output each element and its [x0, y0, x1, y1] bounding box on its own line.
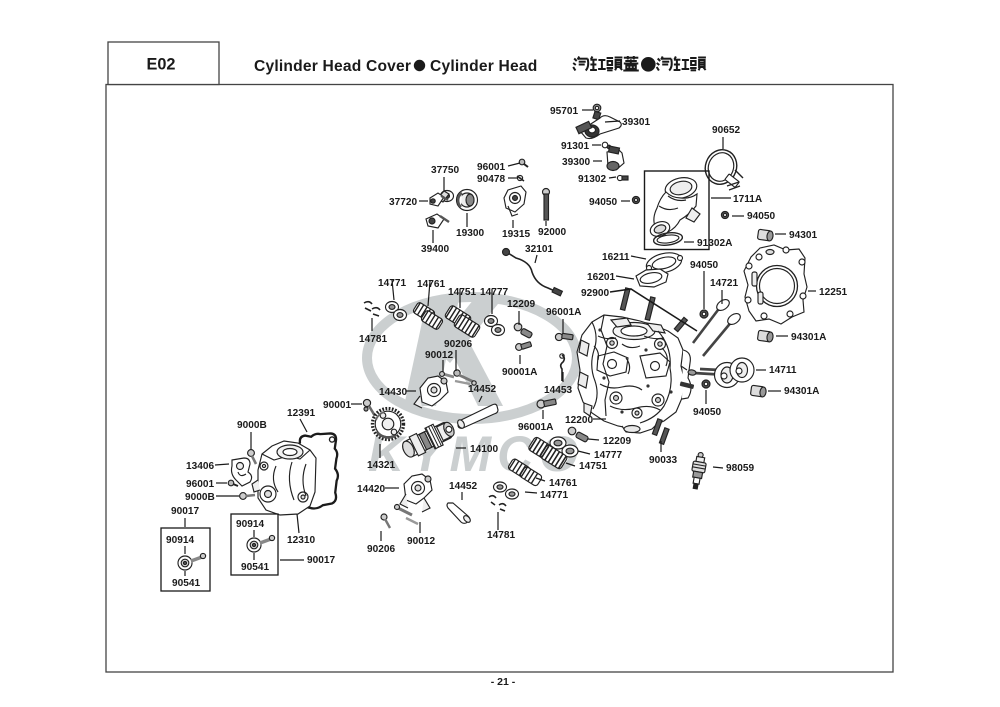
- svg-text:1711A: 1711A: [733, 194, 763, 205]
- svg-text:90012: 90012: [407, 536, 435, 547]
- svg-text:14781: 14781: [487, 530, 515, 541]
- svg-text:14430: 14430: [379, 387, 407, 398]
- svg-text:90652: 90652: [712, 125, 740, 136]
- svg-text:92000: 92000: [538, 227, 566, 238]
- svg-text:94050: 94050: [690, 260, 718, 271]
- svg-text:96001: 96001: [477, 162, 505, 173]
- svg-text:14711: 14711: [769, 365, 797, 376]
- svg-text:90478: 90478: [477, 174, 505, 185]
- svg-text:90017: 90017: [307, 555, 335, 566]
- svg-text:14771: 14771: [378, 278, 406, 289]
- svg-text:16211: 16211: [602, 252, 630, 263]
- svg-text:39301: 39301: [622, 117, 650, 128]
- svg-text:14721: 14721: [710, 278, 738, 289]
- svg-text:94050: 94050: [589, 197, 617, 208]
- svg-text:12209: 12209: [603, 436, 631, 447]
- svg-text:90914: 90914: [236, 519, 264, 530]
- svg-text:39300: 39300: [562, 157, 590, 168]
- svg-text:90012: 90012: [425, 350, 453, 361]
- svg-text:16201: 16201: [587, 272, 615, 283]
- svg-text:14777: 14777: [480, 287, 508, 298]
- svg-text:14781: 14781: [359, 334, 387, 345]
- svg-text:90017: 90017: [171, 506, 199, 517]
- svg-text:91302A: 91302A: [697, 238, 733, 249]
- svg-text:Cylinder Head: Cylinder Head: [430, 58, 537, 75]
- svg-text:14420: 14420: [357, 484, 385, 495]
- svg-text:94301A: 94301A: [791, 332, 827, 343]
- svg-text:90914: 90914: [166, 535, 194, 546]
- svg-text:96001A: 96001A: [546, 307, 582, 318]
- svg-text:90001: 90001: [323, 400, 351, 411]
- svg-text:9000B: 9000B: [237, 420, 267, 431]
- svg-text:9000B: 9000B: [185, 492, 215, 503]
- svg-text:12209: 12209: [507, 299, 535, 310]
- svg-text:94050: 94050: [747, 211, 775, 222]
- svg-text:90541: 90541: [172, 578, 200, 589]
- svg-text:14777: 14777: [594, 450, 622, 461]
- svg-text:12391: 12391: [287, 408, 315, 419]
- svg-text:14761: 14761: [417, 279, 445, 290]
- svg-text:90001A: 90001A: [502, 367, 538, 378]
- svg-text:- 21 -: - 21 -: [491, 676, 516, 688]
- svg-text:90541: 90541: [241, 562, 269, 573]
- svg-text:14751: 14751: [579, 461, 607, 472]
- svg-text:14452: 14452: [449, 481, 477, 492]
- svg-text:14761: 14761: [549, 478, 577, 489]
- svg-text:32101: 32101: [525, 244, 553, 255]
- svg-text:92900: 92900: [581, 288, 609, 299]
- svg-text:12200: 12200: [565, 415, 593, 426]
- svg-text:14321: 14321: [367, 460, 395, 471]
- svg-text:19300: 19300: [456, 228, 484, 239]
- svg-text:98059: 98059: [726, 463, 754, 474]
- svg-text:12251: 12251: [819, 287, 847, 298]
- svg-text:14453: 14453: [544, 385, 572, 396]
- svg-text:37720: 37720: [389, 197, 417, 208]
- svg-text:12310: 12310: [287, 535, 315, 546]
- svg-text:96001: 96001: [186, 479, 214, 490]
- svg-text:90206: 90206: [367, 544, 395, 555]
- svg-text:E02: E02: [147, 56, 176, 74]
- svg-text:Cylinder Head Cover: Cylinder Head Cover: [254, 58, 411, 75]
- svg-text:19315: 19315: [502, 229, 530, 240]
- svg-text:14751: 14751: [448, 287, 476, 298]
- svg-text:95701: 95701: [550, 106, 578, 117]
- svg-text:39400: 39400: [421, 244, 449, 255]
- svg-text:90206: 90206: [444, 339, 472, 350]
- svg-text:90033: 90033: [649, 455, 677, 466]
- svg-text:14452: 14452: [468, 384, 496, 395]
- svg-text:94050: 94050: [693, 407, 721, 418]
- svg-text:91302: 91302: [578, 174, 606, 185]
- svg-text:37750: 37750: [431, 165, 459, 176]
- svg-text:94301A: 94301A: [784, 386, 820, 397]
- svg-text:14771: 14771: [540, 490, 568, 501]
- svg-text:14100: 14100: [470, 444, 498, 455]
- svg-text:13406: 13406: [186, 461, 214, 472]
- svg-text:96001A: 96001A: [518, 422, 554, 433]
- svg-text:91301: 91301: [561, 141, 589, 152]
- svg-text:94301: 94301: [789, 230, 817, 241]
